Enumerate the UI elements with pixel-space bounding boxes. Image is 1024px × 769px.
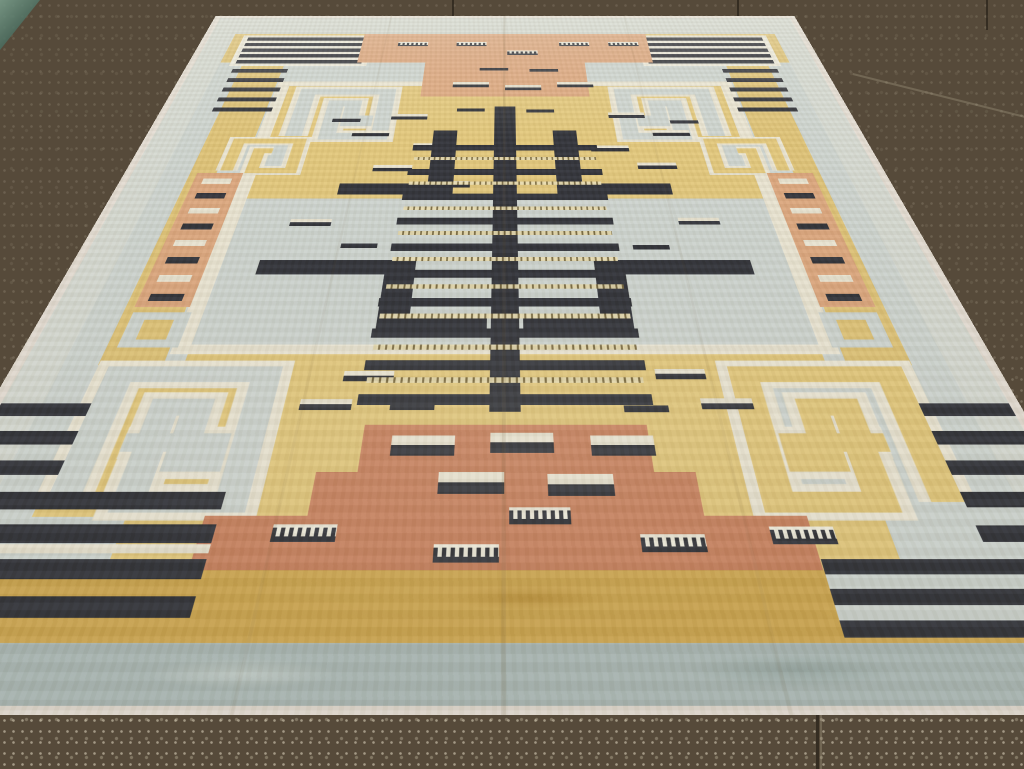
comb-motif	[507, 51, 538, 55]
br-gap-2	[835, 605, 1024, 620]
ladder-speckled-tick-1	[409, 181, 602, 184]
br-stripe-3	[839, 620, 1024, 637]
two-tone-dash	[652, 130, 691, 136]
navy-dash	[633, 245, 670, 250]
right-ladder-bars-1	[784, 193, 816, 198]
two-tone-dash	[490, 433, 554, 453]
ladder-speckled-tick-3	[398, 231, 612, 235]
navy-dash	[480, 68, 509, 71]
ladder-rung-4	[390, 244, 619, 251]
ladder-rung-2	[402, 194, 608, 200]
right-ladder-bars-4	[803, 240, 837, 246]
bottom-blue-band	[0, 643, 1024, 706]
navy-dash	[670, 120, 699, 123]
bl-wide-stripes-0	[0, 492, 226, 510]
left-small-key	[216, 138, 310, 175]
two-tone-dash	[299, 399, 353, 410]
left-edge-ladder-1	[0, 431, 79, 445]
br-stripe-1	[821, 559, 1024, 574]
comb-motif	[640, 534, 708, 552]
br-stripe-2	[830, 589, 1024, 605]
right-short-ladder-1	[726, 78, 784, 82]
ladder-speckled-tick-8	[366, 377, 644, 383]
ladder-speckled-tick-0	[414, 157, 596, 160]
two-tone-dash	[608, 113, 645, 118]
ladder-speckled-tick-2	[403, 206, 607, 210]
two-tone-dash	[590, 435, 656, 455]
right-small-key	[700, 138, 794, 175]
ladder-speckled-tick-7	[373, 345, 637, 350]
comb-motif	[769, 527, 839, 545]
left-ladder-bars-5	[165, 257, 200, 263]
bl-wide-stripes-3	[0, 596, 196, 618]
tile-joint-5	[853, 73, 1024, 121]
tl-long-stripes-1	[244, 43, 367, 46]
two-tone-dash	[372, 165, 412, 171]
terracotta-step2	[307, 472, 704, 516]
right-ladder-bars-6	[818, 275, 854, 282]
right-edge-ladder-4	[976, 525, 1024, 542]
bl-cream-stripe	[0, 544, 211, 553]
top-salmon-block	[357, 34, 653, 63]
right-short-ladder-0	[722, 69, 779, 73]
navy-dash	[340, 244, 377, 249]
tr-long-stripes-0	[642, 38, 763, 41]
left-edge-ladder-2	[0, 460, 65, 474]
right-short-ladder-2	[729, 88, 788, 92]
tr-long-stripes-3	[646, 54, 771, 57]
ladder-rung-7	[371, 328, 640, 337]
comb-motif	[270, 524, 338, 542]
navy-dash	[529, 69, 558, 72]
left-short-ladder-4	[212, 107, 273, 111]
two-tone-dash	[391, 114, 428, 119]
two-tone-dash	[505, 85, 541, 90]
comb-motif	[456, 42, 486, 46]
ladder-rung-1	[407, 169, 602, 175]
navy-dash	[332, 119, 361, 122]
left-ladder-bars-7	[148, 294, 185, 301]
left-ladder-bars-3	[180, 224, 213, 230]
ladder-rung-3	[396, 218, 613, 225]
photo-scene	[0, 0, 1024, 769]
two-tone-dash	[547, 474, 615, 496]
tl-long-stripes-2	[241, 48, 365, 51]
left-ladder-bars-6	[156, 275, 192, 282]
right-ladder-bars-5	[810, 257, 845, 263]
tr-long-stripes-1	[643, 43, 766, 46]
navy-dash	[526, 110, 554, 113]
ladder-rung-9	[357, 394, 653, 405]
bl-wide-stripes-1	[0, 524, 217, 543]
left-edge-ladder-0	[0, 403, 91, 416]
br-gap-1	[825, 574, 1024, 589]
right-short-ladder-4	[737, 107, 798, 111]
right-edge-ladder-0	[919, 403, 1017, 416]
two-tone-dash	[654, 369, 706, 379]
two-tone-dash	[678, 218, 721, 225]
comb-motif	[433, 544, 499, 562]
comb-motif	[608, 42, 639, 46]
two-tone-dash	[637, 163, 677, 169]
left-short-ladder-1	[226, 78, 284, 82]
right-edge-ladder-3	[960, 492, 1024, 507]
left-short-ladder-2	[222, 88, 281, 92]
tl-long-stripes-4	[236, 60, 363, 63]
right-edge-ladder-1	[931, 431, 1024, 445]
right-ladder-bars-3	[796, 224, 829, 230]
comb-motif	[559, 42, 589, 46]
right-ladder-bars-7	[825, 294, 862, 301]
tr-long-stripes-4	[648, 60, 775, 63]
ladder-speckled-tick-5	[386, 284, 624, 288]
ladder-speckled-tick-4	[392, 257, 618, 261]
comb-motif	[509, 507, 571, 524]
tr-long-stripes-2	[645, 48, 769, 51]
two-tone-dash	[557, 82, 594, 87]
left-ladder-bars-2	[188, 208, 221, 214]
left-ladder-bars-1	[195, 193, 227, 198]
ladder-rung-0	[412, 145, 597, 151]
two-tone-dash	[289, 219, 332, 226]
right-ladder-bars-0	[778, 179, 809, 184]
navy-dash	[624, 405, 670, 412]
ladder-speckled-tick-6	[379, 314, 630, 319]
comb-motif	[398, 42, 429, 46]
two-tone-dash	[390, 435, 455, 455]
ladder-rung-8	[364, 360, 646, 370]
two-tone-dash	[700, 398, 755, 409]
two-tone-dash	[453, 82, 489, 87]
right-short-ladder-3	[733, 97, 793, 101]
navy-dash	[457, 108, 485, 111]
left-short-ladder-3	[217, 97, 277, 101]
left-ladder-bars-0	[201, 179, 232, 184]
left-ladder-bars-4	[173, 240, 207, 246]
right-edge-ladder-2	[945, 460, 1024, 474]
left-short-ladder-0	[231, 69, 288, 73]
right-ladder-bars-2	[790, 208, 823, 214]
tile-joint-2	[986, 0, 988, 30]
two-tone-dash	[437, 472, 504, 494]
two-tone-dash	[352, 131, 390, 137]
tl-long-stripes-3	[238, 54, 363, 57]
ladder-rung-6	[378, 298, 632, 307]
bl-wide-stripes-2	[0, 559, 207, 579]
tl-long-stripes-0	[247, 38, 368, 41]
ladder-rung-5	[384, 270, 625, 278]
